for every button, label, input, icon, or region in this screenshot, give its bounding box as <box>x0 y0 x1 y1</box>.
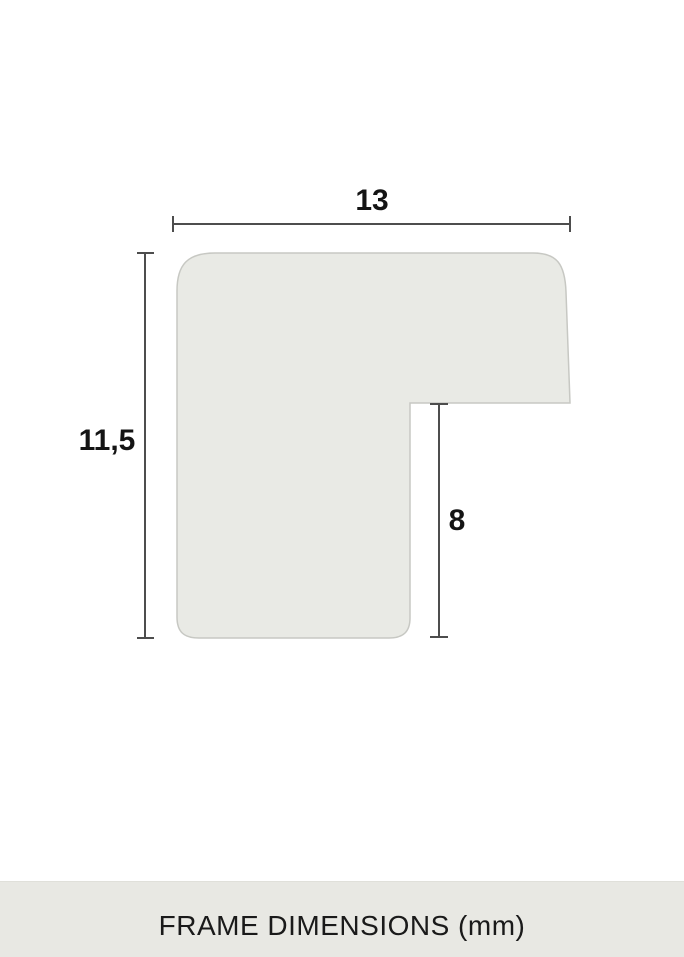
footer-caption: FRAME DIMENSIONS (mm) <box>159 910 526 942</box>
frame-profile-shape <box>177 253 570 638</box>
footer-caption-bar: FRAME DIMENSIONS (mm) <box>0 881 684 957</box>
left-height-label: 11,5 <box>57 426 157 456</box>
top-width-label: 13 <box>322 186 422 216</box>
rabbet-depth-label: 8 <box>407 506 507 536</box>
frame-dimensions-page: 13 11,5 8 FRAME DIMENSIONS (mm) <box>0 0 684 957</box>
top-width-dimension-line <box>173 217 570 231</box>
frame-profile-diagram: 13 11,5 8 <box>0 0 684 883</box>
